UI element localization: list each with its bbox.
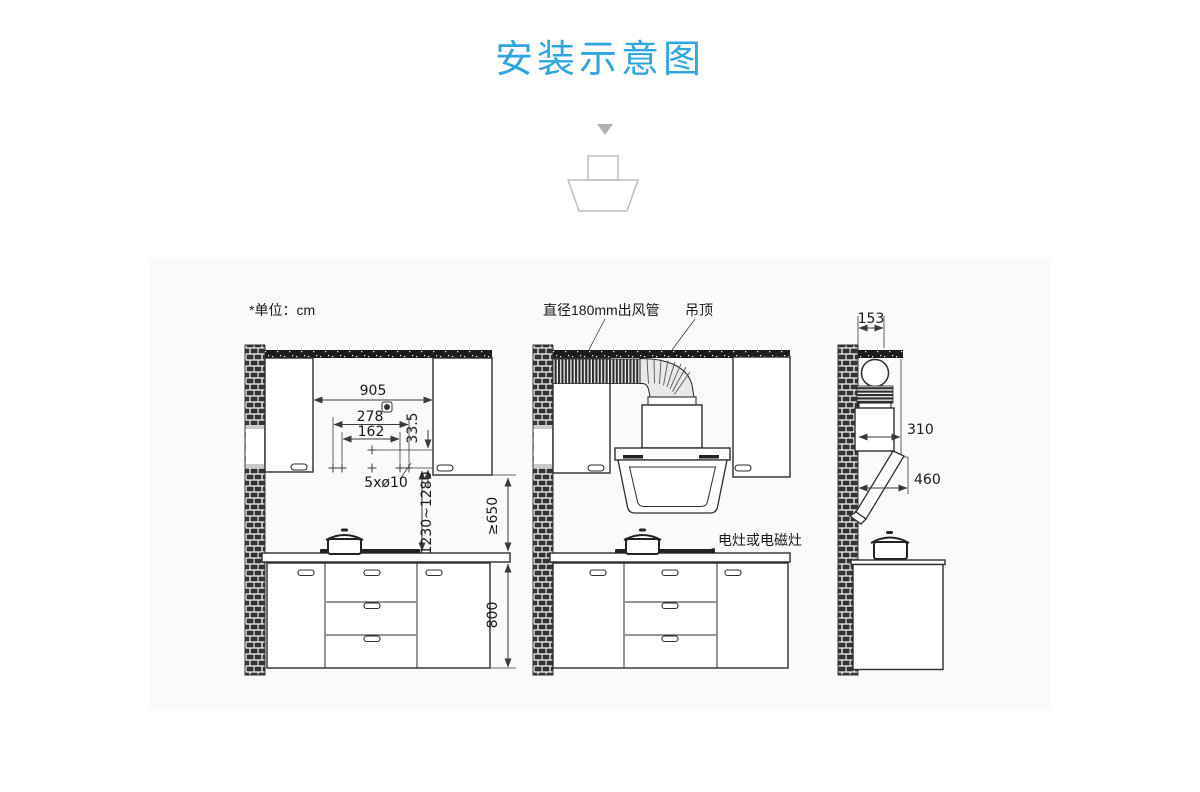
dim-1230-1280: 1230~1280: [419, 472, 435, 555]
upper-cabinet-left: [265, 358, 313, 472]
dim-905: 905: [360, 383, 387, 399]
upper-cabinet-right: [733, 357, 790, 477]
dim-153: 153: [858, 311, 885, 327]
unit-note: *单位：cm: [249, 302, 315, 318]
hood-chimney: [642, 405, 702, 448]
screw-hole-icon: [382, 402, 392, 412]
ceiling-strip: [858, 350, 903, 358]
stove-label: 电灶或电磁灶: [718, 532, 802, 548]
installation-diagram-panel: *单位：cm 905 278 162: [150, 258, 1050, 710]
cabinet-handle: [437, 465, 453, 471]
exhaust-duct: [553, 359, 640, 384]
dim-460: 460: [914, 472, 941, 488]
duct-elbow-side: [862, 360, 889, 387]
dim-278: 278: [357, 409, 384, 425]
cabinet-handle: [291, 464, 307, 470]
dim-800: 800: [485, 602, 501, 629]
base-cabinets: [267, 563, 490, 668]
brick-wall: [533, 345, 553, 675]
mounting-holes: [329, 446, 414, 473]
countertop: [550, 553, 790, 562]
front-mounting-view: *单位：cm 905 278 162: [245, 302, 516, 675]
base-cabinets: [553, 563, 788, 668]
duct-elbow: [640, 359, 694, 398]
range-hood: [615, 397, 730, 513]
upper-cabinet-right: [433, 358, 492, 475]
duct-collar: [859, 403, 891, 408]
cabinet-handle: [735, 465, 751, 471]
ceiling-strip: [265, 350, 492, 358]
duct-pipe-label: 直径180mm出风管: [543, 302, 660, 318]
corrugated-duct-side: [857, 386, 893, 403]
installation-diagram: *单位：cm 905 278 162: [150, 258, 1050, 710]
page-title: 安装示意图: [0, 28, 1200, 83]
pot: [871, 531, 909, 559]
duct-collar: [648, 397, 696, 405]
dim-650: ≥650: [485, 497, 501, 535]
dim-33-5: 33.5: [405, 412, 421, 443]
hood-chimney-side: [855, 408, 894, 451]
ceiling-label: 吊顶: [685, 302, 713, 318]
installed-hood-view: 直径180mm出风管 吊顶: [533, 302, 802, 675]
brick-wall: [245, 345, 265, 675]
pot: [326, 529, 363, 555]
side-view: 153 310 460: [838, 311, 945, 675]
cabinet-handle: [588, 465, 604, 471]
dim-162: 162: [358, 424, 385, 440]
down-triangle-icon: [597, 124, 613, 135]
base-cabinet-side: [853, 565, 943, 670]
dim-310: 310: [907, 422, 934, 438]
countertop: [262, 553, 510, 562]
range-hood-icon: [565, 142, 641, 214]
pot: [624, 529, 661, 555]
